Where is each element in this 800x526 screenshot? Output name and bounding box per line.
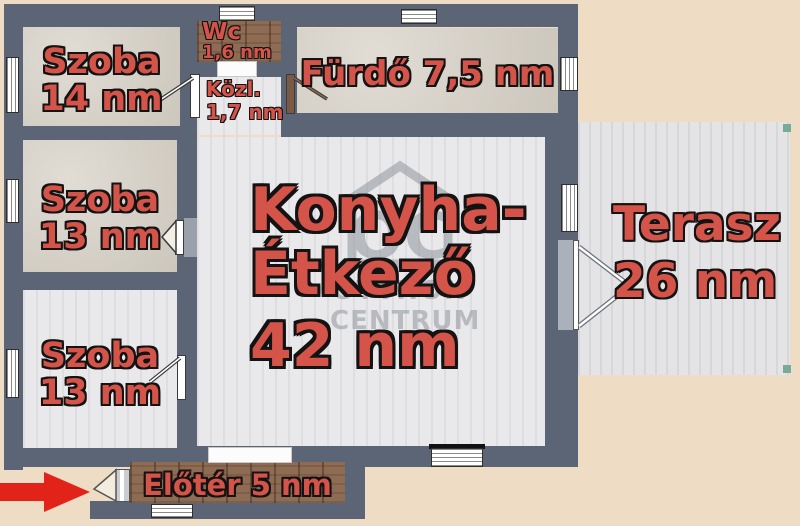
floor-plan: OC OTTHON CENTRUM: [0, 0, 800, 526]
terrace-corner-marker-top: [783, 124, 791, 132]
entrance-arrow-icon: [0, 0, 800, 526]
terrace-corner-marker-bottom: [783, 365, 791, 373]
